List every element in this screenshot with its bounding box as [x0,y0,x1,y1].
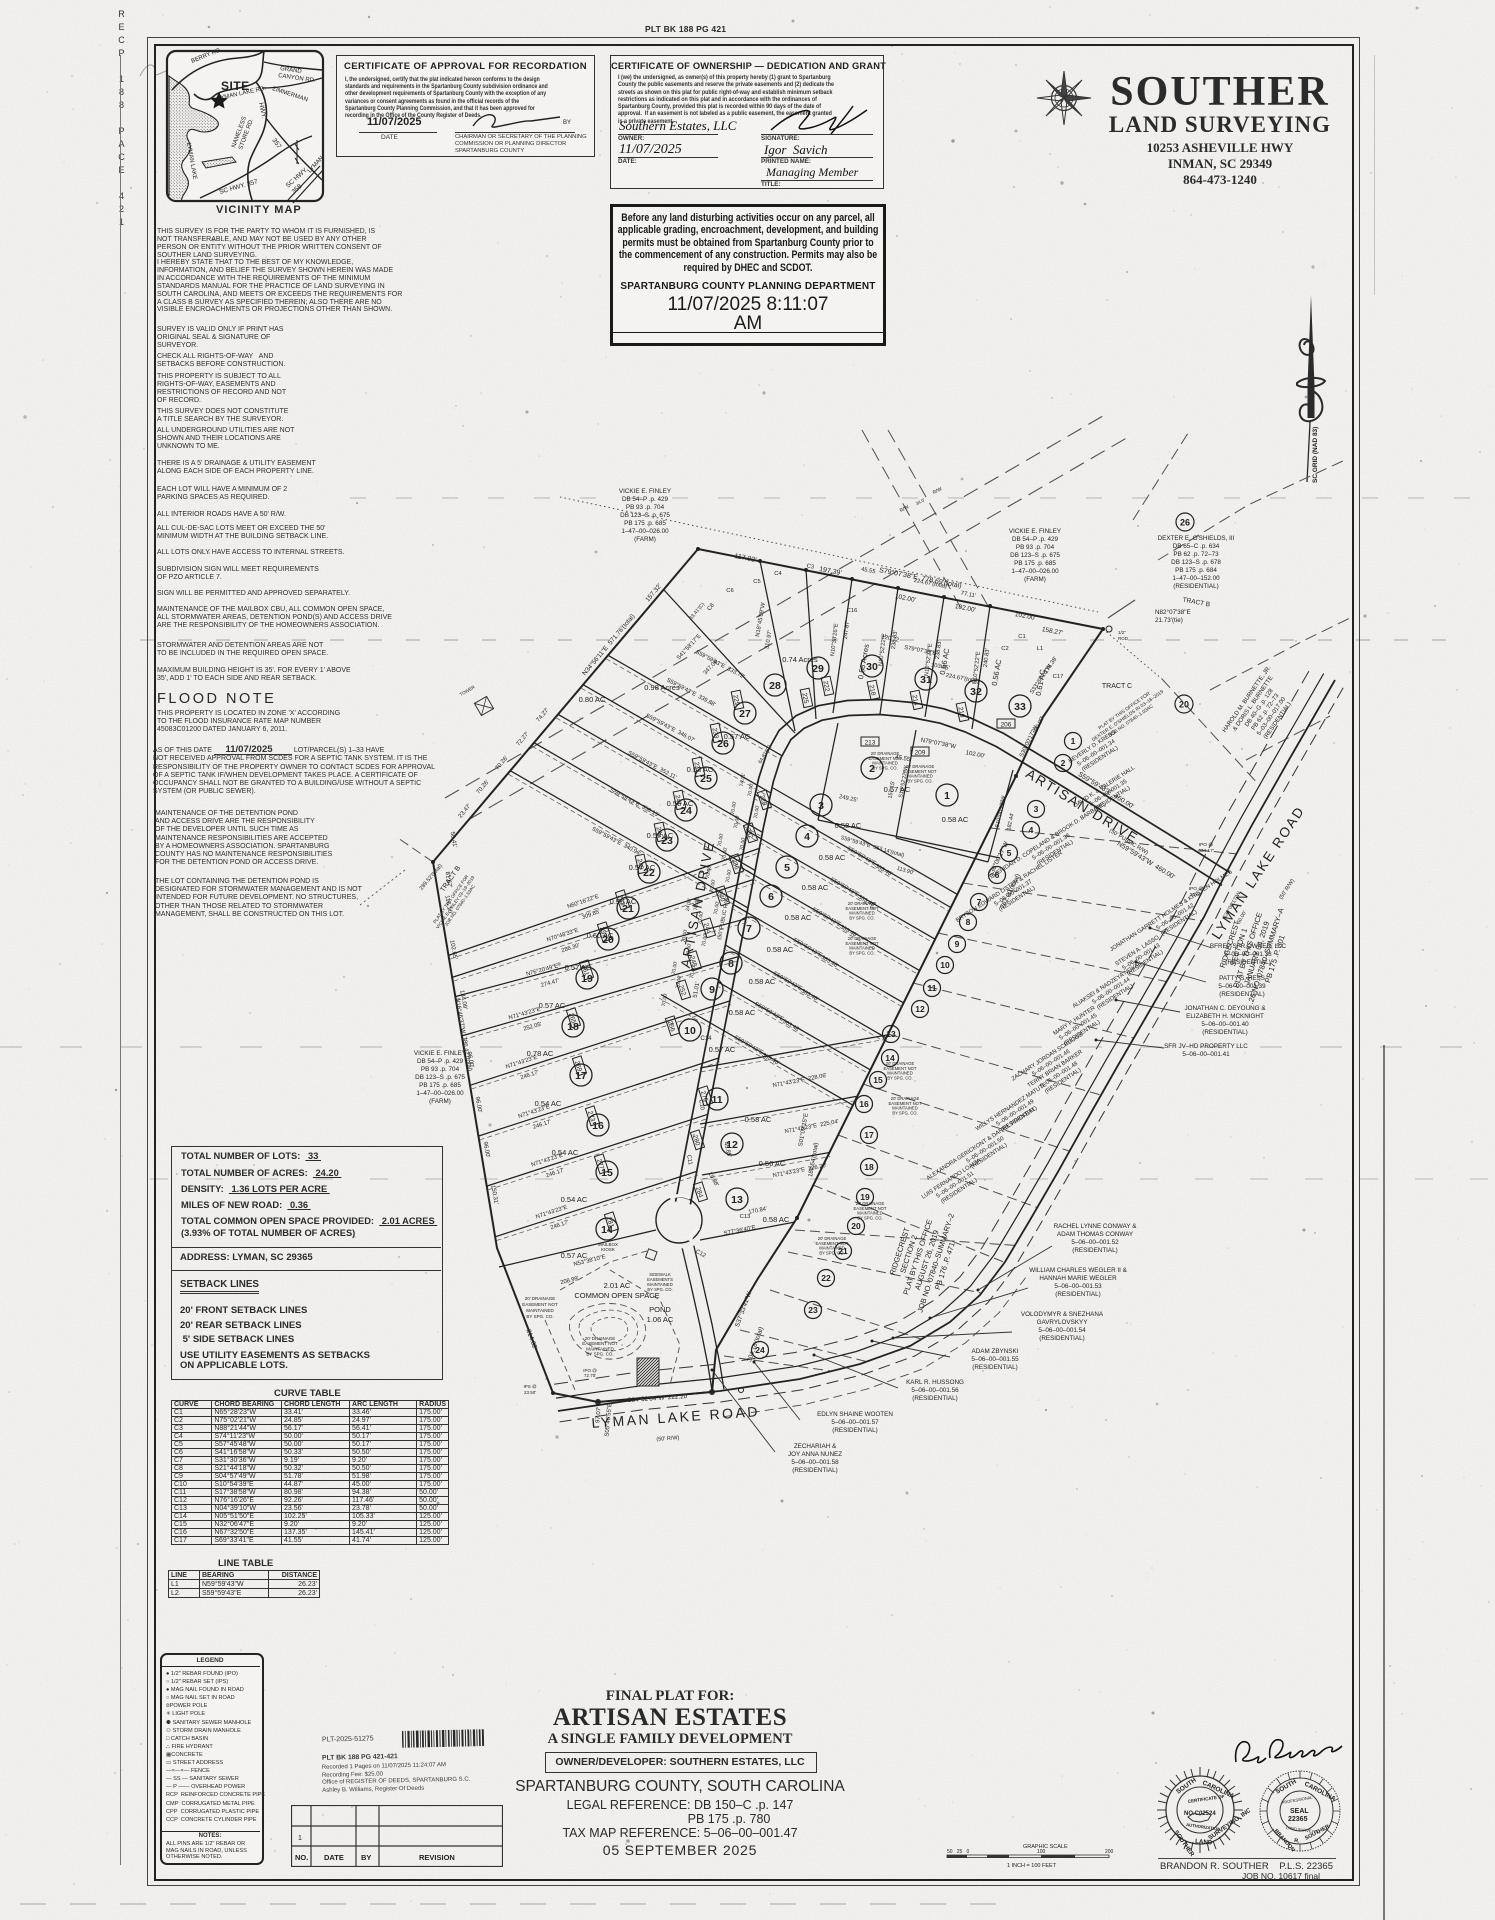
svg-text:22: 22 [821,1273,831,1283]
svg-text:ADAM ZBYNSKI5–06–00–001.55(RES: ADAM ZBYNSKI5–06–00–001.55(RESIDENTIAL) [971,1348,1019,1371]
svg-text:0.56 AC: 0.56 AC [610,897,637,906]
svg-text:363.48': 363.48' [874,863,893,878]
svg-text:EASEMENT NOT: EASEMENT NOT [522,1302,558,1307]
svg-text:10: 10 [684,1025,696,1037]
svg-text:0.58 AC: 0.58 AC [802,883,829,892]
svg-text:0.57 AC: 0.57 AC [709,1045,736,1054]
svg-text:0.57 AC: 0.57 AC [687,765,714,774]
svg-text:CERTIFICATE OF: CERTIFICATE OF [1187,1794,1224,1804]
svg-text:214: 214 [910,694,919,706]
svg-text:17: 17 [864,1130,874,1140]
svg-text:C10: C10 [697,1099,705,1111]
svg-text:BRANDON: BRANDON [1273,1828,1296,1853]
svg-text:N82°07'38"E: N82°07'38"E [1155,608,1191,616]
svg-text:23.50': 23.50' [524,1390,536,1395]
svg-text:0.58 AC: 0.58 AC [745,1115,772,1124]
svg-text:20' DRAINAGEEASEMENT NOTMAINTA: 20' DRAINAGEEASEMENT NOTMAINTAINEDBY SPG… [884,1061,917,1080]
svg-text:1: 1 [944,790,950,802]
svg-text:176.38': 176.38' [1043,656,1059,675]
svg-text:158.27': 158.27' [1041,626,1063,637]
svg-text:74.27': 74.27' [536,707,551,723]
svg-text:LYMAN LAKE ROAD: LYMAN LAKE ROAD [591,1403,760,1431]
svg-text:280: 280 [691,1134,701,1147]
svg-text:S59°59'43"E 352.11': S59°59'43"E 352.11' [627,750,678,781]
svg-text:ZECHARIAH &JOY ANNA NUNEZ5–06–: ZECHARIAH &JOY ANNA NUNEZ5–06–00–001.58(… [788,1443,842,1474]
svg-text:20' DRAINAGEEASEMENT NOTMAINTA: 20' DRAINAGEEASEMENT NOTMAINTAINEDBY SPG… [582,1336,618,1357]
svg-text:0.60 AC: 0.60 AC [587,931,614,940]
svg-text:10: 10 [940,960,950,970]
svg-text:70.00': 70.00' [739,837,747,851]
svg-text:SIDEWALKEASEMENTSMAINTAINEDBY: SIDEWALKEASEMENTSMAINTAINEDBY SPG. CO. [647,1272,673,1292]
svg-text:15: 15 [873,1075,883,1085]
svg-text:L1: L1 [1037,646,1043,652]
svg-text:102.00': 102.00' [954,603,976,614]
svg-text:225: 225 [800,692,809,704]
svg-text:72.27': 72.27' [516,731,531,747]
svg-text:REVISION: REVISION [419,1853,455,1862]
svg-text:BY: BY [361,1853,371,1862]
svg-text:DATE: DATE [324,1853,344,1862]
svg-text:MAINTAINED: MAINTAINED [526,1308,554,1313]
svg-text:214.02': 214.02' [525,1328,539,1350]
svg-text:209: 209 [915,750,926,757]
svg-text:70.26': 70.26' [495,755,510,771]
svg-text:0.58 AC: 0.58 AC [819,853,846,862]
svg-text:20' DRAINAGEEASEMENT NOTMAINTA: 20' DRAINAGEEASEMENT NOTMAINTAINEDBY SPG… [889,1096,922,1115]
svg-text:BY SPG. CO.: BY SPG. CO. [526,1314,553,1319]
svg-text:VICKIE E. FINLEYDB 54–P .p. 42: VICKIE E. FINLEYDB 54–P .p. 429PB 93 .p.… [1009,528,1062,583]
svg-text:70.00': 70.00' [747,783,755,797]
svg-text:0.58 AC: 0.58 AC [785,913,812,922]
svg-text:S59°59'43"E: S59°59'43"E [811,907,842,929]
svg-text:210: 210 [956,706,965,718]
svg-text:MAILBOXKIOSK: MAILBOXKIOSK [598,1242,618,1252]
svg-text:100: 100 [1037,1849,1046,1855]
svg-text:AUTHORIZATION: AUTHORIZATION [1186,1822,1221,1832]
svg-text:246.17': 246.17' [532,1119,552,1131]
svg-text:252.05': 252.05' [523,1022,543,1033]
svg-text:70.00': 70.00' [671,961,679,975]
svg-text:N18°45'09"W: N18°45'09"W [755,602,767,638]
svg-text:POND1.06 AC: POND1.06 AC [647,1305,674,1324]
svg-text:0.58 AC: 0.58 AC [749,977,776,986]
svg-text:IPO @72.70': IPO @72.70' [583,1368,597,1378]
svg-text:256: 256 [666,1020,676,1033]
svg-text:C1: C1 [1018,634,1025,640]
svg-text:117.03': 117.03' [734,553,757,564]
svg-text:KARL R. HUSSONG5–06–00–001.56(: KARL R. HUSSONG5–06–00–001.56(RESIDENTIA… [906,1379,964,1402]
svg-text:238.83': 238.83' [891,630,899,649]
svg-text:20' DRAINAGE: 20' DRAINAGE [525,1296,556,1301]
svg-text:NO.: NO. [295,1853,308,1862]
svg-text:70.00': 70.00' [733,815,741,829]
svg-text:1: 1 [1071,736,1076,746]
svg-text:26: 26 [1180,518,1190,528]
svg-text:VOLODYMYR & SNEZHANAGAVRYLOVSK: VOLODYMYR & SNEZHANAGAVRYLOVSKYY5–06–00–… [1021,1311,1104,1342]
svg-text:21.73'(tie): 21.73'(tie) [1155,617,1183,624]
svg-text:C17: C17 [1053,674,1064,680]
svg-text:70.00': 70.00' [661,993,669,1007]
svg-text:247.87': 247.87' [843,620,851,639]
svg-text:SOUTH: SOUTH [1175,1777,1198,1796]
svg-text:206: 206 [1001,722,1012,729]
svg-text:0.54 AC: 0.54 AC [561,1195,588,1204]
svg-text:16: 16 [859,1099,869,1109]
svg-text:N79°07'38"W: N79°07'38"W [920,738,957,751]
svg-text:S37°33'41"W: S37°33'41"W [733,1290,753,1328]
svg-text:C2: C2 [1001,646,1008,652]
svg-text:21: 21 [838,1246,848,1256]
svg-text:363.48': 363.48' [781,1019,800,1034]
svg-text:70.00': 70.00' [717,833,725,847]
svg-text:S59°59'43"E: S59°59'43"E [733,1035,764,1057]
svg-text:284: 284 [694,1186,704,1199]
svg-text:PLAT BY THIS OFFICE FORVICKIE: PLAT BY THIS OFFICE FORVICKIE E. FINLEY … [431,871,481,933]
svg-text:N71°43'23"E 225.04': N71°43'23"E 225.04' [784,1119,839,1135]
svg-text:70.00': 70.00' [730,801,738,815]
svg-text:N60°16'22"E: N60°16'22"E [567,894,600,910]
svg-text:0.57 AC: 0.57 AC [724,732,751,741]
svg-text:50 25 0: 50 25 0 [947,1849,969,1855]
svg-text:RACHEL LYNNE CONWAY &ADAM THOM: RACHEL LYNNE CONWAY &ADAM THOMAS CONWAY5… [1054,1223,1138,1254]
svg-text:634.17': 634.17' [1198,848,1214,854]
svg-text:20: 20 [851,1221,861,1231]
svg-text:(50' R/W): (50' R/W) [1278,878,1296,901]
svg-text:C6: C6 [726,588,733,594]
svg-text:PATTY S. HESS5–06–00–001.39(RE: PATTY S. HESS5–06–00–001.39(RESIDENTIAL) [1218,975,1266,998]
svg-text:64.81'(C): 64.81'(C) [757,744,773,765]
svg-text:S59°59'43"E 333.72': S59°59'43"E 333.72' [694,649,745,680]
svg-text:25: 25 [700,773,712,785]
svg-text:33: 33 [1014,701,1026,713]
svg-text:R/W: R/W [932,486,944,496]
svg-text:N59°59'43"W 460.00': N59°59'43"W 460.00' [1116,840,1177,881]
svg-text:6: 6 [995,870,1000,880]
svg-text:4: 4 [804,831,810,843]
svg-text:1/2": 1/2" [1118,630,1126,635]
svg-text:TOWER: TOWER [459,684,477,697]
svg-text:S59°59'43"E: S59°59'43"E [753,1001,784,1023]
svg-text:3: 3 [1034,804,1039,814]
svg-text:13: 13 [886,1029,896,1039]
svg-text:C11: C11 [685,1154,693,1165]
svg-text:7: 7 [746,923,752,935]
svg-text:28: 28 [769,680,781,692]
svg-text:182.44': 182.44' [1006,812,1016,831]
svg-text:S59°59'43"E 346.07': S59°59'43"E 346.07' [645,713,696,744]
svg-text:6: 6 [768,891,774,903]
svg-text:0.57 AC: 0.57 AC [629,863,656,872]
svg-text:WILLIAM CHARLES WEGLER II &HAN: WILLIAM CHARLES WEGLER II &HANNAH MARIE … [1029,1267,1127,1298]
svg-text:20' DRAINAGEEASEMENT NOTMAINTA: 20' DRAINAGEEASEMENT NOTMAINTAINEDBY SPG… [904,764,937,783]
svg-text:(50' R/W): (50' R/W) [656,1435,680,1443]
svg-text:200: 200 [1105,1849,1114,1855]
svg-text:27: 27 [739,708,751,720]
svg-text:HAROLD M. BURNETTE, JR.& DORIS: HAROLD M. BURNETTE, JR.& DORIS L. BURNET… [1222,665,1304,755]
svg-text:5: 5 [784,862,790,874]
svg-text:274.47': 274.47' [540,978,560,989]
svg-text:70.00': 70.00' [701,933,709,947]
svg-text:74.01': 74.01' [739,773,747,787]
svg-text:IPO @: IPO @ [1199,842,1214,848]
svg-text:RIDGECRESTSECTION 2PLAT BY THI: RIDGECRESTSECTION 2PLAT BY THIS OFFICEAU… [879,1201,965,1317]
svg-text:0.57 AC: 0.57 AC [565,963,592,972]
svg-text:C8: C8 [707,603,716,613]
svg-text:30: 30 [866,661,878,673]
svg-text:29: 29 [812,663,824,675]
svg-text:20' DRAINAGEEASEMENT NOTMAINTA: 20' DRAINAGEEASEMENT NOTMAINTAINEDBY SPG… [869,751,902,770]
svg-text:77.11': 77.11' [960,591,976,600]
svg-text:2: 2 [1061,758,1066,768]
svg-text:363.48': 363.48' [800,988,819,1003]
svg-text:8: 8 [966,917,971,927]
svg-text:246.17': 246.17' [545,1168,565,1180]
svg-text:11: 11 [711,1094,722,1106]
svg-text:7: 7 [977,897,982,907]
svg-text:310.97': 310.97' [764,630,773,650]
svg-text:246.17': 246.17' [550,1220,570,1232]
svg-text:TRACT B: TRACT B [1182,596,1211,608]
svg-text:14: 14 [885,1053,895,1063]
svg-text:0.58 AC: 0.58 AC [763,1215,790,1224]
svg-text:N10°38'26"E: N10°38'26"E [830,623,840,656]
svg-text:96.00': 96.00' [482,1141,491,1158]
svg-text:9: 9 [709,984,715,996]
svg-text:102.00': 102.00' [965,750,985,760]
svg-text:1 INCH = 100 FEET: 1 INCH = 100 FEET [1007,1863,1057,1869]
svg-text:SEAL: SEAL [1290,1808,1309,1815]
svg-text:11: 11 [928,983,937,993]
svg-text:S59°59'43"E: S59°59'43"E [772,971,803,993]
svg-text:20' DRAINAGEEASEMENT NOTMAINTA: 20' DRAINAGEEASEMENT NOTMAINTAINEDBY SPG… [846,901,879,920]
svg-text:246.17': 246.17' [520,1070,540,1082]
svg-text:S59°59'43"E: S59°59'43"E [829,877,860,899]
svg-text:JONATHAN C. DEYOUNG &ELIZABETH: JONATHAN C. DEYOUNG &ELIZABETH H. MCKNIG… [1184,1005,1266,1036]
svg-text:363.48': 363.48' [820,955,839,970]
svg-text:20: 20 [1179,700,1189,710]
svg-text:R/W: R/W [899,504,911,514]
svg-text:70.00': 70.00' [705,865,713,879]
svg-text:VICKIE E. FINLEYDB 54–P .p. 42: VICKIE E. FINLEYDB 54–P .p. 429PB 93 .p.… [619,488,672,543]
svg-text:222: 222 [821,680,830,692]
svg-text:218: 218 [867,684,876,696]
svg-text:229: 229 [731,694,740,706]
svg-text:9: 9 [955,939,960,949]
svg-text:70.00': 70.00' [725,869,733,883]
svg-text:0.57 AC: 0.57 AC [539,1001,566,1010]
svg-text:C5: C5 [753,579,760,585]
svg-text:70.26': 70.26' [476,779,491,795]
svg-text:102.00': 102.00' [894,593,916,604]
svg-text:0.80 AC: 0.80 AC [579,695,606,704]
svg-text:249.25': 249.25' [838,794,858,804]
svg-text:150.31': 150.31' [489,1185,498,1205]
svg-text:32: 32 [970,686,982,698]
svg-text:12: 12 [915,1004,925,1014]
svg-text:C4: C4 [774,571,782,577]
svg-text:ROD: ROD [1118,636,1129,641]
svg-text:IPO @: IPO @ [1189,886,1204,892]
svg-text:S77°36'40"E: S77°36'40"E [723,1225,756,1237]
svg-text:18: 18 [864,1162,874,1172]
svg-text:20' DRAINAGEEASEMENT NOTMAINTA: 20' DRAINAGEEASEMENT NOTMAINTAINEDBY SPG… [846,936,879,955]
svg-text:23: 23 [808,1305,818,1315]
svg-text:GRAPHIC SCALE: GRAPHIC SCALE [1023,1844,1068,1850]
svg-text:70.00': 70.00' [713,901,721,915]
svg-text:0.58 AC: 0.58 AC [942,815,969,824]
svg-text:S59°59'43"E 358.15': S59°59'43"E 358.15' [609,788,660,819]
svg-text:309.85': 309.85' [581,909,601,921]
svg-text:0.56 AC: 0.56 AC [990,658,1004,686]
svg-text:13: 13 [731,1194,743,1206]
svg-text:0.56 AC: 0.56 AC [667,799,694,808]
svg-text:5: 5 [1007,848,1012,858]
svg-text:EDLYN SHAINE WOOTEN5–06–00–001: EDLYN SHAINE WOOTEN5–06–00–001.57(RESIDE… [817,1411,893,1434]
svg-text:S59°59'43"E: S59°59'43"E [792,937,823,959]
svg-text:S10°00'17"W: S10°00'17"W [995,795,1008,829]
svg-text:70.00': 70.00' [689,965,697,979]
svg-text:4: 4 [1029,825,1034,835]
svg-text:3: 3 [818,800,824,812]
svg-text:19: 19 [860,1192,870,1202]
svg-text:MARY P. HUNTER5–06–00–001.45(R: MARY P. HUNTER5–06–00–001.45(RESIDENTIAL… [1052,1005,1104,1049]
svg-text:0.58 AC: 0.58 AC [835,821,862,830]
svg-text:34.0': 34.0' [915,497,926,506]
svg-text:SFR JV–HD PROPERTY LLC5–06–00–: SFR JV–HD PROPERTY LLC5–06–00–001.41 [1164,1043,1248,1058]
svg-text:S84°52'04"W 222.20': S84°52'04"W 222.20' [627,1392,688,1404]
svg-text:DEXTER E. O'SHIELDS, IIIDB 65–: DEXTER E. O'SHIELDS, IIIDB 65–C .p. 634P… [1158,535,1235,590]
svg-text:C16: C16 [847,608,858,614]
svg-text:240.83': 240.83' [983,648,991,667]
svg-text:23.60': 23.60' [1190,892,1203,898]
svg-text:0.58 AC: 0.58 AC [729,1008,756,1017]
svg-text:51.01': 51.01' [693,981,702,998]
svg-text:102.00': 102.00' [1014,611,1036,622]
svg-text:8: 8 [728,958,734,970]
svg-text:24: 24 [755,1345,765,1355]
svg-text:0.58 AC: 0.58 AC [767,945,794,954]
svg-text:0.57 AC: 0.57 AC [647,831,674,840]
svg-text:19.88': 19.88' [706,1171,719,1188]
svg-text:33.41'(C): 33.41'(C) [688,601,706,621]
svg-text:45.55: 45.55 [860,567,875,576]
svg-text:0.74 Acres: 0.74 Acres [782,655,818,664]
svg-text:C14: C14 [700,1036,712,1042]
svg-text:TRACT C: TRACT C [1102,683,1132,690]
svg-text:213: 213 [865,740,876,747]
svg-text:N10°52'22"E: N10°52'22"E [878,633,888,666]
svg-text:22365: 22365 [1288,1816,1308,1823]
svg-text:16: 16 [592,1120,604,1132]
svg-text:VICKIE E. FINLEYDB 54–P .p. 42: VICKIE E. FINLEYDB 54–P .p. 429PB 93 .p.… [414,1050,467,1105]
svg-text:IPS @: IPS @ [523,1384,537,1389]
svg-text:286.30': 286.30' [561,943,581,955]
svg-text:233: 233 [710,727,719,739]
svg-text:70.00': 70.00' [753,805,761,819]
svg-text:1: 1 [298,1835,302,1842]
svg-text:0.56 AC: 0.56 AC [759,1159,786,1168]
svg-text:228: 228 [758,794,768,807]
